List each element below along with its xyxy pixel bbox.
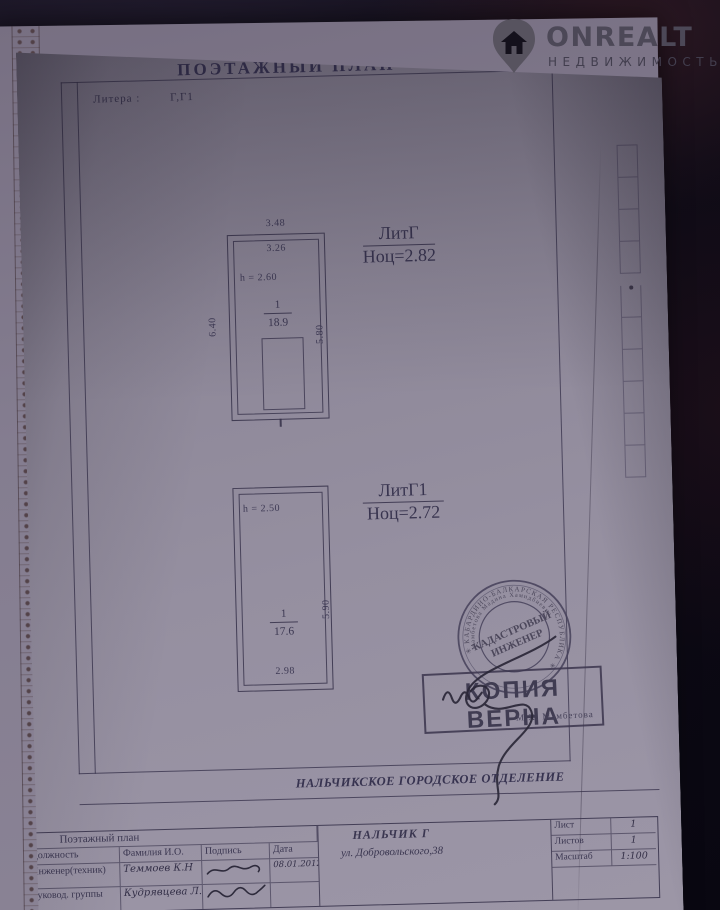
object-address: ул. Добровольского,38 xyxy=(341,845,443,860)
branch-name: НАЛЬЧИКСКОЕ ГОРОДСКОЕ ОТДЕЛЕНИЕ xyxy=(275,769,585,792)
plan-litg1: h = 2.50 1 17.6 5.90 2.98 xyxy=(232,486,333,692)
sheets-value: 1 xyxy=(612,833,656,850)
city-name: НАЛЬЧИК Г xyxy=(352,826,430,843)
footer-separator-line xyxy=(80,789,660,805)
plan-litg-title: ЛитГ Ноц=2.82 xyxy=(343,221,456,268)
sheet-label: Лист xyxy=(551,818,611,836)
litera-value: Г,Г1 xyxy=(170,91,194,104)
plan-litg-pit xyxy=(261,337,305,410)
title-block-city-cell: НАЛЬЧИК Г ул. Добровольского,38 xyxy=(318,820,553,906)
row-name: Кудрявцева Л.И. xyxy=(121,885,204,910)
row-date: 08.01.2012г xyxy=(270,858,319,883)
dimension-label: 6.40 xyxy=(207,317,219,337)
plan-litg1-height-mark: Ноц=2.72 xyxy=(367,501,441,523)
paper-crease xyxy=(577,144,601,910)
plan-litg: 3.48 3.26 h = 2.60 1 18.9 6.40 5.80 xyxy=(227,233,330,422)
row-signature xyxy=(203,883,272,909)
litera-label: Литера : xyxy=(93,92,141,105)
room-number: 1 xyxy=(270,608,298,622)
signature-scribble xyxy=(205,860,265,880)
margin-stamp-strip xyxy=(617,144,647,477)
plan-litg1-name: ЛитГ1 xyxy=(362,479,444,504)
onrealt-watermark: ONREALT НЕДВИЖИМОСТЬ xyxy=(488,14,714,80)
row-position: Инженер(техник) xyxy=(28,863,121,889)
room-label: 1 17.6 xyxy=(235,604,332,641)
title-block-table: Поэтажный план Должность Фамилия И.О. По… xyxy=(26,816,660,910)
room-number: 1 xyxy=(264,299,292,313)
ceiling-height-label: h = 2.50 xyxy=(243,503,280,515)
floor-plan-page: ПОЭТАЖНЫЙ ПЛАН Литера : Г,Г1 3.48 3.26 h… xyxy=(16,32,685,910)
dimension-label: 3.48 xyxy=(226,217,324,231)
row-name: Теммоев К.Н xyxy=(120,861,203,887)
room-area: 17.6 xyxy=(274,625,294,638)
litera-row: Литера : Г,Г1 xyxy=(93,91,194,106)
title-block-left: Поэтажный план Должность Фамилия И.О. По… xyxy=(27,826,320,910)
row-position: Руковод. группы xyxy=(29,887,122,910)
sheets-label: Листов xyxy=(552,834,612,852)
signature-scribble xyxy=(206,884,266,904)
empty-cell xyxy=(552,865,657,900)
copy-stamp-label: КОПИЯ ВЕРНА xyxy=(424,673,602,737)
title-block-sheet-table: Лист 1 Листов 1 Масштаб 1:100 xyxy=(551,817,659,900)
sheet-value: 1 xyxy=(611,817,655,834)
room-label: 1 18.9 xyxy=(228,295,327,332)
scale-value: 1:100 xyxy=(612,849,656,866)
row-signature xyxy=(202,859,271,885)
header-date: Дата xyxy=(270,842,318,859)
frame-left-inner-line xyxy=(77,82,96,774)
brand-subtitle: НЕДВИЖИМОСТЬ xyxy=(548,55,720,69)
plan-litg-name: ЛитГ xyxy=(362,222,435,247)
dimension-label: 5.80 xyxy=(314,324,326,344)
photo-scene: ПОЭТАЖНЫЙ ПЛАН Литера : Г,Г1 3.48 3.26 h… xyxy=(0,0,720,910)
header-signature: Подпись xyxy=(202,843,270,861)
plan-litg1-title: ЛитГ1 Ноц=2.72 xyxy=(345,478,461,525)
scale-label: Масштаб xyxy=(552,850,612,868)
plan-litg-door-tick xyxy=(280,419,282,427)
plan-litg1-inner-wall xyxy=(239,492,328,686)
room-area: 18.9 xyxy=(268,316,288,329)
ceiling-height-label: h = 2.60 xyxy=(240,272,277,284)
house-pin-icon xyxy=(490,18,538,74)
plan-litg-height-mark: Ноц=2.82 xyxy=(362,244,436,266)
dimension-label: 5.90 xyxy=(320,599,332,619)
row-date xyxy=(271,882,320,907)
copy-verified-stamp: КОПИЯ ВЕРНА М.Х. Мамбетова xyxy=(422,666,605,734)
brand-name: ONREALT xyxy=(546,22,693,53)
frame-left-outer-line xyxy=(61,82,80,774)
